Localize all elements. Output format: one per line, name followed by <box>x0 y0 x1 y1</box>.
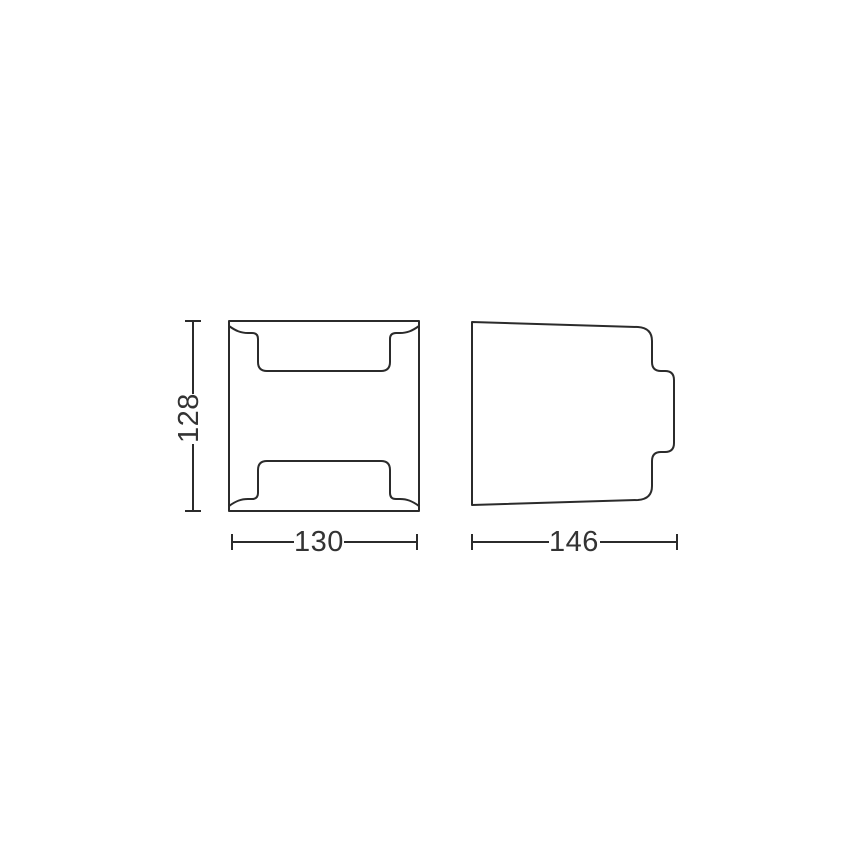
dimension-width-label: 130 <box>294 526 344 558</box>
dimension-height-label: 128 <box>173 393 205 443</box>
dimension-drawing-page: 128 130 146 <box>0 0 868 868</box>
side-view-outline <box>472 322 674 505</box>
front-view-bottom-recess <box>229 461 419 506</box>
dimension-depth: 146 <box>472 526 677 558</box>
dimension-height: 128 <box>173 321 205 511</box>
technical-drawing-canvas: 128 130 146 <box>0 0 868 868</box>
front-view-top-recess <box>229 326 419 371</box>
dimension-depth-label: 146 <box>549 526 599 558</box>
front-view <box>229 321 419 511</box>
dimension-width: 130 <box>232 526 417 558</box>
side-view <box>472 322 674 505</box>
